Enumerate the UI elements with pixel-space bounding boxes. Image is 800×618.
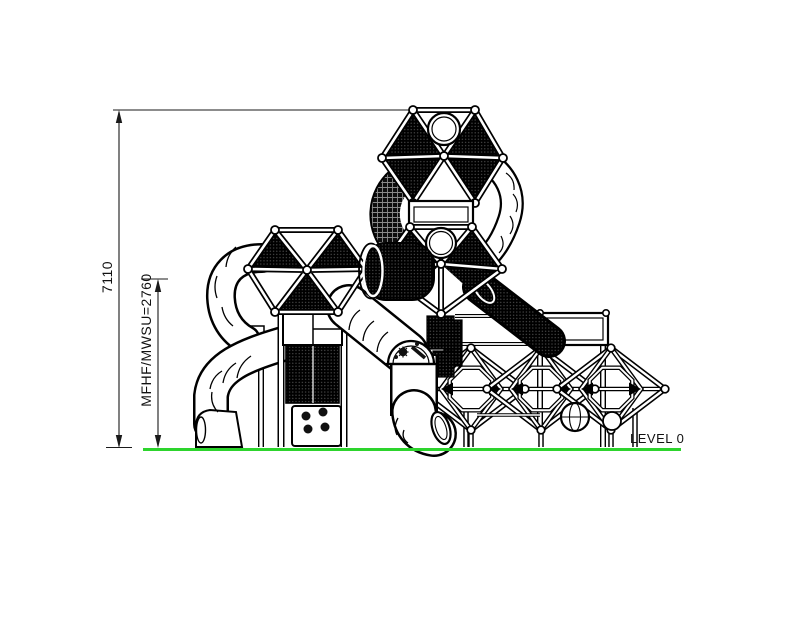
- overall-height-label: 7110: [99, 261, 115, 293]
- play-ball: [561, 403, 589, 431]
- play-ball-small: [603, 412, 621, 430]
- fall-height-label: MFHF/MWSU=2760: [138, 273, 154, 406]
- climbing-tower: [281, 312, 344, 447]
- drawing-canvas: 7110 MFHF/MWSU=2760: [0, 0, 800, 618]
- tube-slide-left-lower: [196, 344, 283, 447]
- arrow-up-icon: [116, 110, 122, 123]
- climbing-holds-panel: [292, 406, 341, 446]
- ground-level-label: LEVEL 0: [630, 431, 684, 446]
- porthole-icon: [428, 113, 460, 145]
- bridge-section: [409, 201, 473, 228]
- arrow-down-icon: [116, 435, 122, 448]
- mesh-crawl-cylinder: [359, 243, 434, 300]
- drawing-page: 7110 MFHF/MWSU=2760: [0, 0, 800, 618]
- arrow-up-icon: [155, 279, 161, 292]
- arrow-down-icon: [155, 435, 161, 448]
- playground-structure: [196, 106, 669, 447]
